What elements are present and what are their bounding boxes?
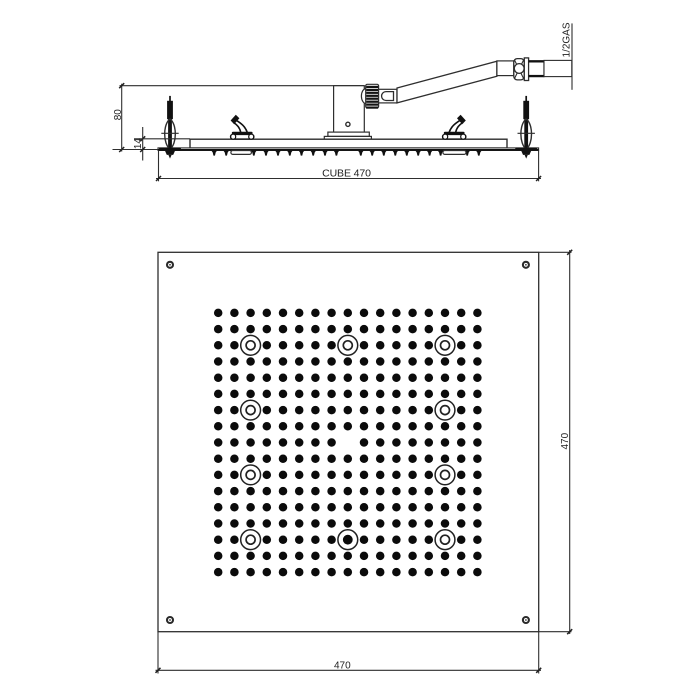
- svg-text:14: 14: [133, 138, 144, 150]
- svg-text:470: 470: [560, 432, 571, 449]
- svg-text:1/2GAS: 1/2GAS: [561, 22, 572, 57]
- svg-text:80: 80: [113, 109, 124, 121]
- svg-text:CUBE 470: CUBE 470: [322, 168, 371, 180]
- svg-text:470: 470: [334, 661, 351, 672]
